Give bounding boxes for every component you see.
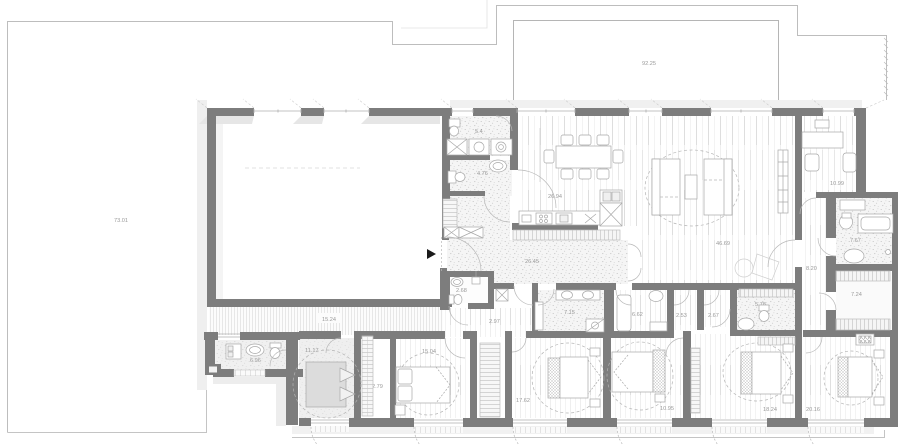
- svg-text:46.69: 46.69: [716, 241, 730, 247]
- svg-text:2.97: 2.97: [489, 319, 500, 325]
- svg-text:4.76: 4.76: [477, 171, 488, 177]
- svg-text:6.96: 6.96: [250, 358, 261, 364]
- svg-text:10.99: 10.99: [830, 181, 844, 187]
- svg-text:8.20: 8.20: [806, 266, 817, 272]
- svg-text:2.68: 2.68: [456, 288, 467, 294]
- svg-text:20.16: 20.16: [806, 407, 820, 413]
- svg-text:73.01: 73.01: [114, 218, 128, 224]
- svg-text:6.62: 6.62: [632, 312, 643, 318]
- svg-text:26.45: 26.45: [525, 259, 539, 265]
- svg-text:2.79: 2.79: [372, 384, 383, 390]
- svg-text:15.24: 15.24: [322, 317, 336, 323]
- svg-text:92.25: 92.25: [642, 61, 656, 67]
- svg-text:2.53: 2.53: [676, 313, 687, 319]
- svg-text:2.67: 2.67: [708, 313, 719, 319]
- svg-text:17.62: 17.62: [516, 398, 530, 404]
- svg-text:10.95: 10.95: [660, 406, 674, 412]
- svg-text:5.4: 5.4: [475, 129, 483, 135]
- svg-text:7.15: 7.15: [564, 310, 575, 316]
- svg-text:11.17: 11.17: [305, 348, 319, 354]
- svg-text:18.24: 18.24: [763, 407, 777, 413]
- svg-text:7.67: 7.67: [850, 238, 861, 244]
- svg-text:7.24: 7.24: [851, 292, 862, 298]
- svg-text:15.04: 15.04: [422, 349, 436, 355]
